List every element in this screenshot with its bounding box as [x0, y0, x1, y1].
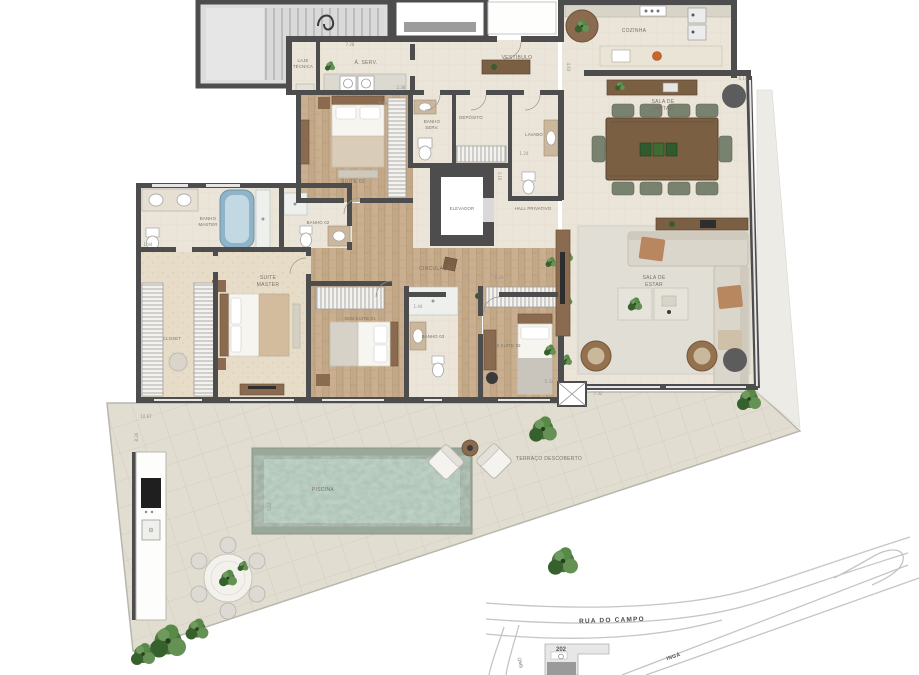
service-elevator-shaft	[394, 0, 486, 38]
map-building-202	[545, 644, 609, 675]
suite02-wardrobe	[388, 98, 406, 198]
room-label-cozinha: COZINHA	[622, 28, 647, 34]
room-label-banho02: BANHO 02	[307, 220, 330, 225]
map-street-rua-do-campo: RUA DO CAMPO	[579, 616, 645, 625]
map-street-166: (166)	[517, 657, 524, 669]
outdoor-counter	[132, 452, 166, 620]
room-label-suite-master-1: SUITE	[260, 275, 277, 281]
round-cabinet	[722, 84, 746, 108]
dim-7-32: 7.32	[594, 391, 603, 396]
dim-4-63: 4.63	[566, 63, 571, 72]
map-street-inga: INGÁ	[666, 651, 682, 662]
room-label-sala-jantar-1: SALA DE	[652, 99, 675, 105]
dim-8-26: 8.26	[134, 432, 139, 441]
corner-pillar	[558, 382, 586, 406]
dim-10-67: 10.67	[140, 414, 152, 419]
dim-6-26: 6.26	[495, 275, 504, 280]
dim-6-10: 6.10	[739, 76, 748, 81]
dim-7-28: 7.28	[346, 42, 355, 47]
room-label-semi-suite02: SEM SUITE 02	[489, 343, 521, 348]
room-label-banho03: BANHO 03	[422, 334, 445, 339]
dim-5-32: 5.32	[545, 379, 554, 384]
dim-1-24: 1.24	[520, 151, 529, 156]
grill	[141, 478, 161, 508]
room-label-semi-suite01: SEM SUITE 01	[344, 316, 376, 321]
dim-1-44: 1.44	[414, 304, 423, 309]
room-label-piscina: PISCINA	[312, 487, 334, 493]
room-label-sala-estar-2: ESTAR	[645, 282, 663, 288]
room-label-banho-master-1: BANHO	[200, 216, 217, 221]
dim-5-62: 5.62	[267, 502, 272, 511]
floorplan-page: LAJE TÉCNICA Á. SERV. VESTIBULO COZINHA …	[0, 0, 919, 675]
room-label-laje-tecnica-2: TÉCNICA	[293, 64, 313, 69]
room-label-sala-estar-1: SALA DE	[643, 275, 666, 281]
semi-suite02-furniture	[484, 287, 556, 394]
room-label-vestibulo: VESTIBULO	[502, 55, 533, 61]
room-label-deposito: DEPÓSITO	[459, 115, 483, 120]
site-map	[486, 537, 919, 675]
side-ledge	[757, 90, 800, 428]
room-label-hall-privativo: HALL PRIVATIVO	[515, 206, 552, 211]
room-label-lavabo: LAVABO	[525, 132, 543, 137]
dim-2-38: 2.38	[397, 85, 406, 90]
shaft-2	[488, 2, 556, 34]
dim-3-16: 3.16	[497, 172, 502, 181]
room-label-banho-serv-2: SERV.	[425, 125, 438, 130]
side-table	[462, 440, 478, 456]
side-table-dark	[723, 348, 747, 372]
room-label-suite-master-2: MASTER	[257, 282, 280, 288]
dim-1-94: 1.94	[144, 242, 153, 247]
room-label-sala-jantar-2: JANTAR	[653, 106, 674, 112]
room-label-area-servico: Á. SERV.	[355, 59, 378, 66]
room-label-suite02: SUITE 02	[341, 179, 365, 185]
room-label-closet: CLOSET	[163, 336, 182, 341]
dim-5-98: 5.98	[379, 101, 388, 106]
room-label-banho-serv-1: BANHO	[424, 119, 441, 124]
room-label-laje-tecnica-1: LAJE	[297, 58, 308, 63]
vestibule-console	[482, 60, 530, 74]
storage-shelves	[456, 146, 506, 162]
room-label-circulacao: CIRCULAÇÃO	[419, 265, 455, 272]
room-label-elevador: ELEVADOR	[450, 206, 475, 211]
room-label-terraco: TERRAÇO DESCOBERTO	[516, 456, 582, 462]
map-building-number: 202	[556, 647, 567, 653]
floorplan-canvas: LAJE TÉCNICA Á. SERV. VESTIBULO COZINHA …	[0, 0, 919, 675]
tv	[560, 252, 565, 304]
room-label-banho-master-2: MASTER	[198, 222, 217, 227]
